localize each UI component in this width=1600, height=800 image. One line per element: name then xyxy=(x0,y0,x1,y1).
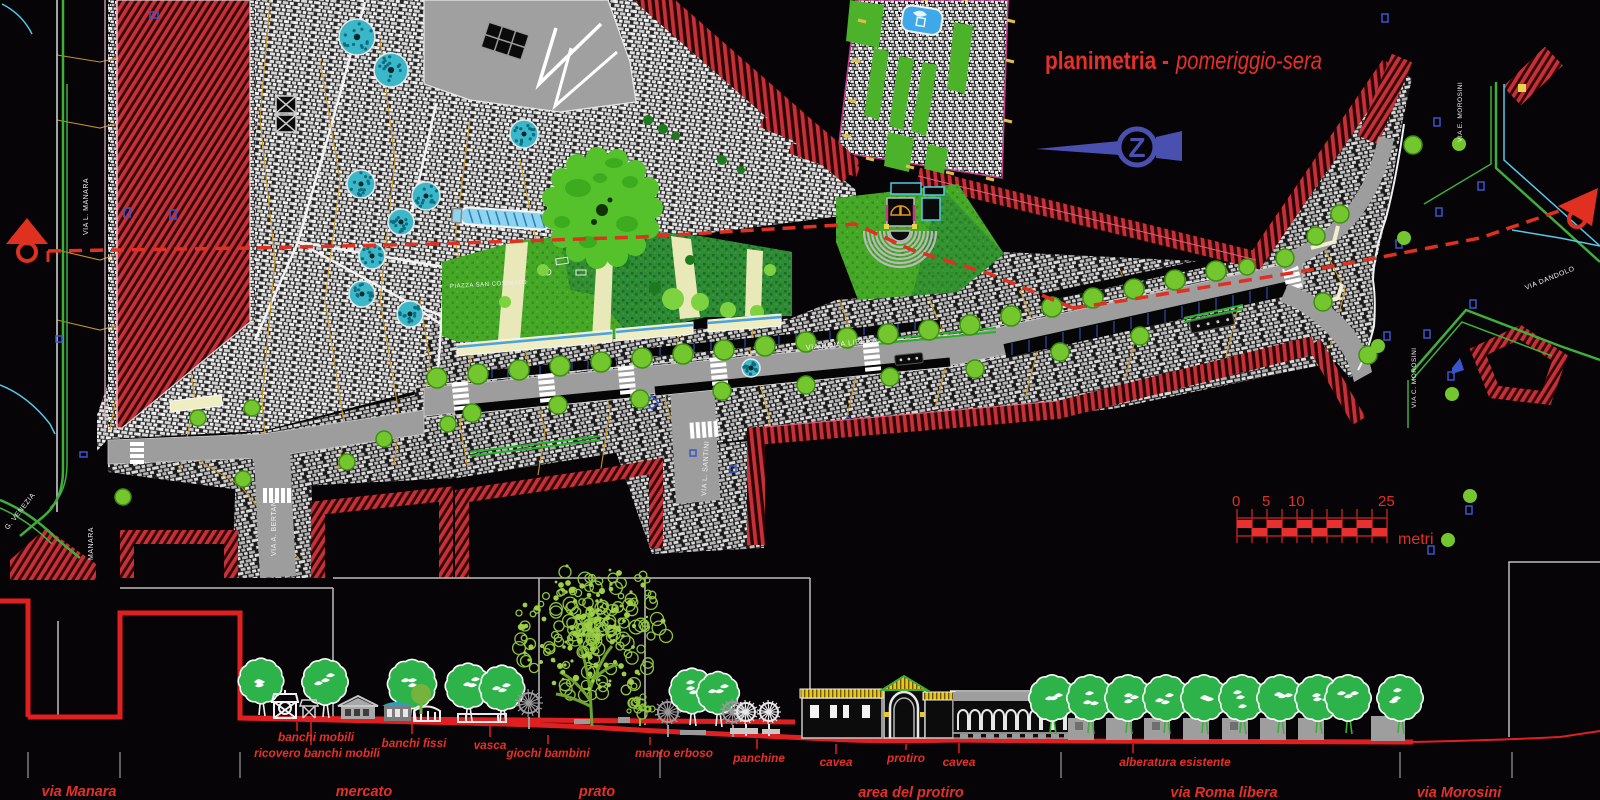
svg-text:10: 10 xyxy=(1288,493,1305,510)
svg-text:VIA E. MOROSINI: VIA E. MOROSINI xyxy=(1457,82,1464,142)
svg-text:VIA L. MANARA: VIA L. MANARA xyxy=(83,178,90,235)
svg-text:mercato: mercato xyxy=(336,784,393,800)
svg-text:alberatura esistente: alberatura esistente xyxy=(1119,755,1231,769)
svg-text:manto erboso: manto erboso xyxy=(635,746,713,760)
svg-text:vasca: vasca xyxy=(474,738,507,752)
svg-text:via Roma libera: via Roma libera xyxy=(1170,785,1277,800)
svg-text:via Morosini: via Morosini xyxy=(1417,785,1503,800)
svg-text:5: 5 xyxy=(1262,493,1270,510)
svg-text:VIA C. MOROSINI: VIA C. MOROSINI xyxy=(1411,347,1418,408)
svg-text:cavea: cavea xyxy=(943,755,976,769)
svg-text:panchine: panchine xyxy=(732,751,785,765)
svg-text:pomeriggio-sera: pomeriggio-sera xyxy=(1175,47,1322,75)
svg-text:prato: prato xyxy=(578,784,615,800)
svg-text:giochi bambini: giochi bambini xyxy=(505,746,590,760)
svg-text:protiro: protiro xyxy=(886,751,925,765)
svg-text:cavea: cavea xyxy=(820,755,853,769)
svg-text:area del protiro: area del protiro xyxy=(858,785,964,800)
svg-text:banchi mobili: banchi mobili xyxy=(278,730,355,744)
svg-text:banchi fissi: banchi fissi xyxy=(382,736,448,750)
svg-text:ricovero banchi mobili: ricovero banchi mobili xyxy=(254,746,381,760)
svg-text:Z: Z xyxy=(1128,132,1145,163)
svg-text:VIA A. BERTANI: VIA A. BERTANI xyxy=(271,498,278,556)
svg-text:MANARA: MANARA xyxy=(88,527,95,560)
svg-text:0: 0 xyxy=(1232,493,1240,510)
svg-text:via Manara: via Manara xyxy=(42,784,117,800)
svg-text:metri: metri xyxy=(1398,531,1434,548)
svg-text:planimetria -: planimetria - xyxy=(1045,47,1169,75)
svg-text:25: 25 xyxy=(1378,493,1395,510)
